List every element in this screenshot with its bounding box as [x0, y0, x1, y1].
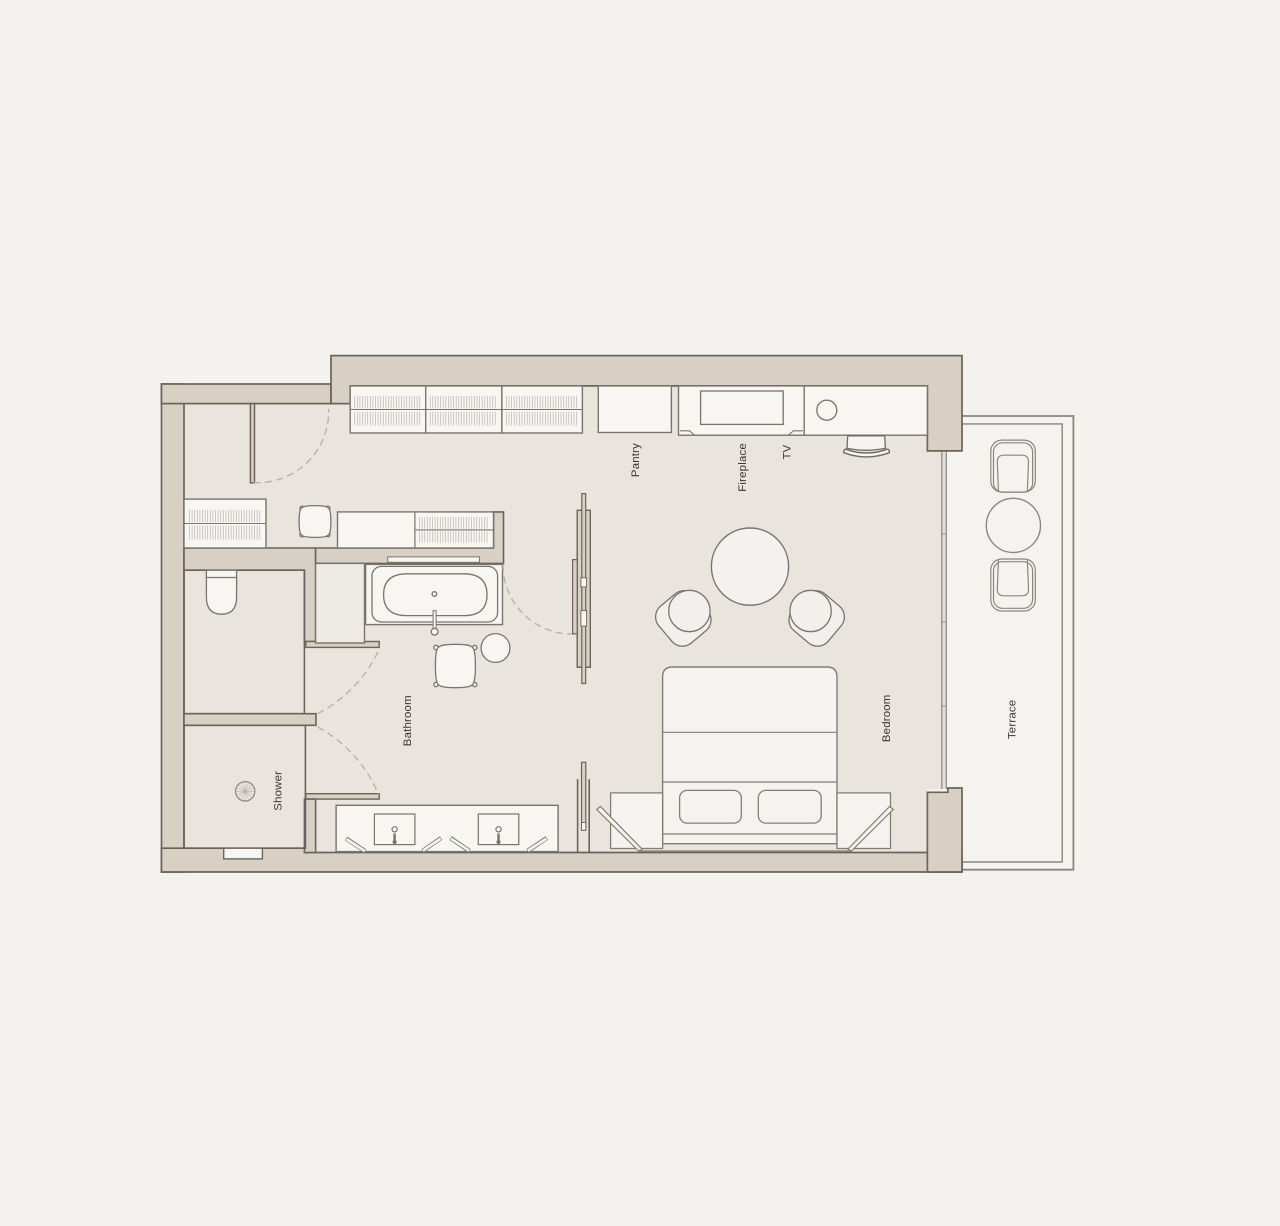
svg-text:Bedroom: Bedroom [881, 694, 893, 742]
svg-text:Terrace: Terrace [1007, 700, 1019, 739]
svg-text:Fireplace: Fireplace [737, 443, 749, 492]
svg-text:Pantry: Pantry [630, 443, 642, 477]
svg-text:Bathroom: Bathroom [402, 695, 414, 746]
svg-text:TV: TV [782, 444, 794, 459]
svg-text:Shower: Shower [273, 771, 285, 811]
